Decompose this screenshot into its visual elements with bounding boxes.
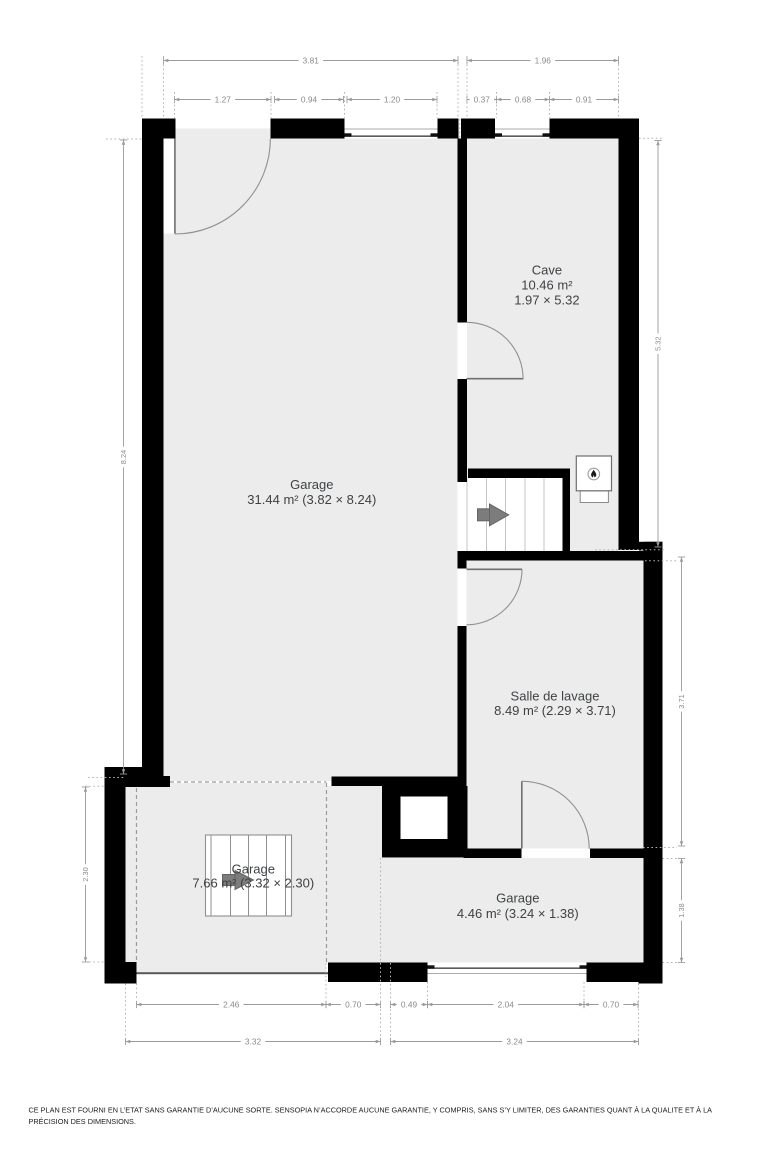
svg-text:1.20: 1.20 xyxy=(384,94,401,104)
svg-text:0.70: 0.70 xyxy=(345,999,362,1009)
svg-text:31.44 m² (3.82 × 8.24): 31.44 m² (3.82 × 8.24) xyxy=(247,492,376,507)
svg-text:10.46 m²: 10.46 m² xyxy=(521,277,573,292)
svg-text:Garage: Garage xyxy=(232,861,275,876)
svg-text:0.94: 0.94 xyxy=(301,94,318,104)
svg-text:7.66 m² (3.32 × 2.30): 7.66 m² (3.32 × 2.30) xyxy=(192,875,314,890)
svg-text:4.46 m² (3.24 × 1.38): 4.46 m² (3.24 × 1.38) xyxy=(457,906,579,921)
svg-text:2.46: 2.46 xyxy=(223,999,240,1009)
svg-text:1.97 × 5.32: 1.97 × 5.32 xyxy=(514,292,579,307)
svg-text:2.30: 2.30 xyxy=(81,867,90,881)
svg-text:8.24: 8.24 xyxy=(119,450,128,464)
svg-text:5.32: 5.32 xyxy=(654,337,663,351)
svg-text:PRÉCISION DES DIMENSIONS.: PRÉCISION DES DIMENSIONS. xyxy=(29,1117,136,1126)
svg-text:0.49: 0.49 xyxy=(401,999,418,1009)
svg-text:Cave: Cave xyxy=(532,262,562,277)
svg-text:1.96: 1.96 xyxy=(535,55,552,65)
svg-text:0.70: 0.70 xyxy=(603,999,620,1009)
svg-text:Garage: Garage xyxy=(496,891,539,906)
svg-text:2.04: 2.04 xyxy=(498,999,515,1009)
svg-text:1.38: 1.38 xyxy=(677,903,686,917)
svg-text:3.71: 3.71 xyxy=(677,694,686,708)
svg-text:Salle de lavage: Salle de lavage xyxy=(511,688,600,703)
svg-text:3.32: 3.32 xyxy=(245,1036,262,1046)
svg-text:Garage: Garage xyxy=(290,477,333,492)
svg-text:3.24: 3.24 xyxy=(506,1036,523,1046)
svg-text:8.49 m² (2.29 × 3.71): 8.49 m² (2.29 × 3.71) xyxy=(494,703,616,718)
svg-text:0.91: 0.91 xyxy=(576,94,593,104)
svg-text:1.27: 1.27 xyxy=(215,94,232,104)
svg-text:0.68: 0.68 xyxy=(515,94,532,104)
svg-text:0.37: 0.37 xyxy=(474,94,491,104)
svg-text:3.81: 3.81 xyxy=(303,55,320,65)
svg-text:CE PLAN EST FOURNI EN L’ETAT S: CE PLAN EST FOURNI EN L’ETAT SANS GARANT… xyxy=(29,1106,713,1115)
